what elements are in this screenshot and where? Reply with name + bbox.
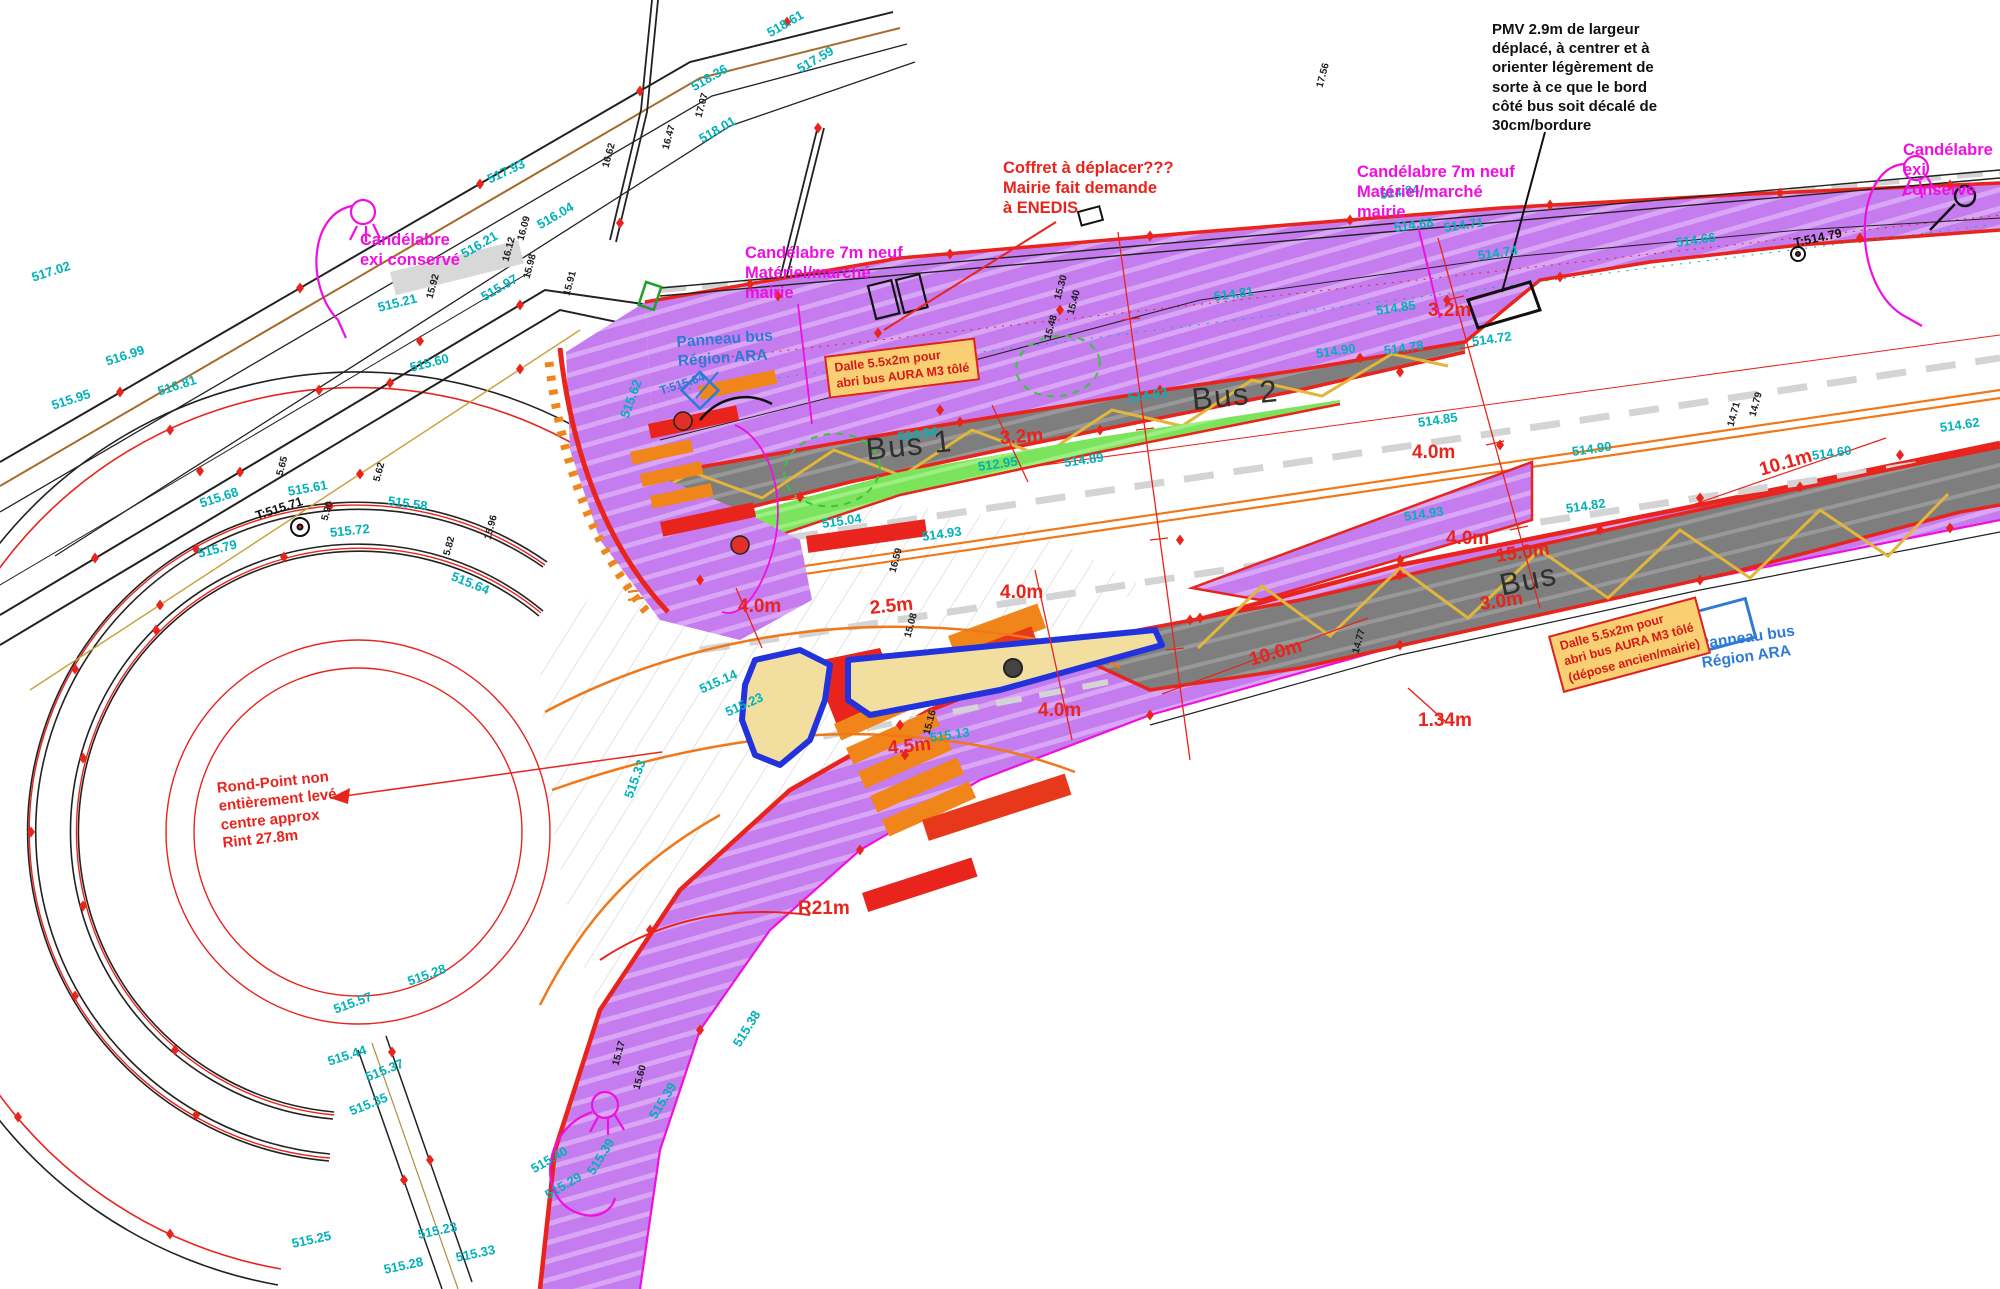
- measurement-label: 4.0m: [1038, 700, 1081, 722]
- roundabout-note: Rond-Point non entièrement levé, centre …: [216, 767, 346, 853]
- measurement-label: 1.34m: [1418, 710, 1472, 732]
- plan-canvas: 518.61518.36517.59518.01517.93517.02516.…: [0, 0, 2000, 1289]
- north-sidewalk-strip: [645, 170, 2000, 479]
- measurement-label: 3.2m: [1428, 300, 1471, 322]
- measurement-label: R21m: [798, 898, 850, 920]
- candelabra-new-note-left: Candélabre 7m neuf Matériel/marché mairi…: [745, 243, 903, 303]
- measurement-label: 2.5m: [869, 594, 914, 620]
- measurement-label: 4.0m: [1446, 528, 1489, 550]
- measurement-label: 4.5m: [887, 734, 932, 760]
- candelabra-existing-note-tr: Candélabre exi conservé: [1903, 140, 2000, 200]
- measurement-label: 4.0m: [1412, 442, 1455, 464]
- measurement-label: 4.0m: [1000, 582, 1043, 604]
- bus-sign-note-left: Panneau bus Région ARA: [676, 327, 775, 371]
- pmv-note: PMV 2.9m de largeur déplacé, à centrer e…: [1492, 20, 1687, 135]
- measurement-label: 3.2m: [999, 425, 1044, 450]
- candelabra-existing-note-tl: Candélabre exi conservé: [360, 230, 460, 270]
- measurement-label: 4.0m: [738, 596, 781, 618]
- coffret-note: Coffret à déplacer??? Mairie fait demand…: [1003, 158, 1174, 218]
- candelabra-new-note-right: Candélabre 7m neuf Matériel/marché mairi…: [1357, 162, 1515, 222]
